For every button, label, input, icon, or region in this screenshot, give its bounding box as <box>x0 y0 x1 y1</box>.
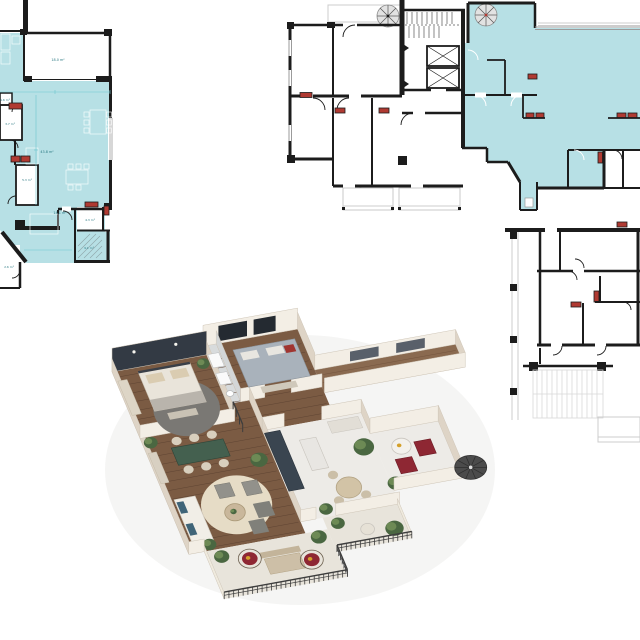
breakfast-table <box>336 477 361 498</box>
dining-chair <box>207 430 217 438</box>
kitchen-south-wall <box>301 507 316 522</box>
plant <box>355 440 366 449</box>
spiral-post <box>469 466 473 470</box>
plant <box>197 359 204 365</box>
plant <box>386 522 396 530</box>
plant <box>320 504 328 510</box>
bathroom-sink <box>226 391 233 397</box>
breakfast-chair <box>328 471 338 479</box>
table-decor <box>397 443 402 447</box>
floor-plan-composite: 18.0 m² 43.8 m² 14.1 m² 5.3 m² 4.3 m² 9.… <box>0 0 640 640</box>
dining-chair <box>201 462 211 470</box>
spotlight-icon <box>174 343 177 346</box>
floorplan-3d-render <box>0 0 640 640</box>
plant <box>231 509 235 512</box>
dining-chair <box>184 465 194 473</box>
plant <box>145 438 153 444</box>
dining-chair <box>172 437 182 445</box>
spotlight-icon <box>132 350 135 353</box>
dining-chair <box>189 434 199 442</box>
living-south-stub <box>189 539 204 554</box>
plant <box>332 519 340 525</box>
chair-pillow <box>308 557 313 561</box>
side-table <box>392 438 411 454</box>
plant <box>312 532 321 539</box>
dining-chair <box>219 459 229 467</box>
chair-pillow <box>246 556 251 560</box>
outdoor-side-table <box>361 523 375 534</box>
plant <box>251 454 261 462</box>
plant <box>203 540 211 546</box>
plant <box>215 552 223 559</box>
